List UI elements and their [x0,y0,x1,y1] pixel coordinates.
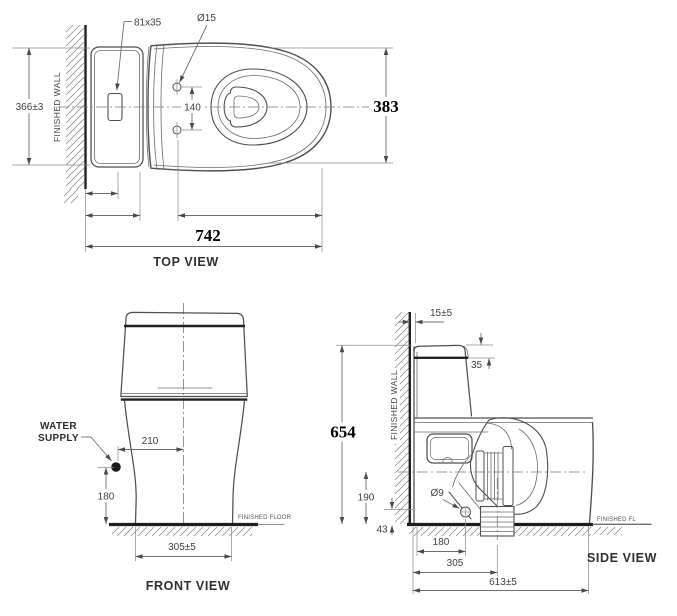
hatch-stroke [519,527,528,536]
hatch-stroke [66,161,84,179]
hatch-stroke [66,84,84,102]
dim-outlet-from-wall: 305 [413,527,497,594]
hatch-stroke [250,534,252,536]
hatch-stroke [395,466,409,480]
hatch-stroke [66,49,84,67]
dim-label-140: 140 [184,103,201,114]
dim-label-305-front: 305±5 [168,542,196,553]
callout-hole-diameter: Ø15 [180,13,217,83]
coupler-flange-right [503,447,513,506]
hatch-stroke [435,527,444,536]
hatch-stroke [66,112,84,130]
hatch-stroke [145,527,154,536]
coupler-flange-left [476,451,484,501]
arrowhead [315,244,322,249]
hatch-stroke [66,70,84,88]
floor-hatch-front [112,527,252,536]
callout-bolt-hole: Ø9 [431,488,460,509]
dim-label-35: 35 [471,360,483,371]
hatch-stroke [66,105,84,123]
hatch-stroke [395,459,409,473]
arrowhead [582,588,589,593]
hatch-stroke [124,527,133,536]
arrowhead [384,48,389,55]
arrowhead [180,75,185,82]
wall-hatch-tail [64,189,78,203]
hatch-stroke [409,527,416,534]
dim-label-d15: Ø15 [197,13,216,24]
hatch-stroke [561,527,570,536]
hatch-stroke [395,494,409,508]
water-supply-point [111,462,121,472]
arrowhead [413,570,420,575]
arrowhead [177,447,184,452]
dim-label-210: 210 [142,436,159,447]
hatch-stroke [582,527,591,536]
hatch-stroke [66,42,84,60]
hatch-stroke [64,189,78,203]
hatch-stroke [554,527,563,536]
hatch-stroke [428,527,437,536]
hatch-stroke [201,527,210,536]
hatch-stroke [395,312,409,326]
hatch-stroke [575,527,584,536]
hatch-stroke [414,527,423,536]
dim-label-180-front: 180 [98,492,115,503]
hatch-stroke [66,154,84,172]
arrowhead [490,570,497,575]
callout-button-size: 81x35 [115,18,161,91]
hatch-stroke [66,91,84,109]
hatch-stroke [568,527,577,536]
hatch-stroke [66,35,84,53]
hatch-stroke [395,340,409,354]
top-view: 366±3 140 81x35 Ø15 383 [11,13,403,269]
body-side-left [125,401,137,524]
arrowhead [416,320,423,325]
hatch-stroke [395,473,409,487]
dim-label-654: 654 [330,423,356,442]
hatch-stroke [138,527,147,536]
hatch-stroke [229,527,238,536]
arrowhead [190,123,195,130]
hatch-stroke [395,487,409,501]
dim-label-81x35: 81x35 [134,18,162,29]
finished-wall-label-side: FINISHED WALL [389,370,399,440]
hatch-stroke [421,527,430,536]
hatch-stroke [621,534,622,535]
arrowhead [390,526,395,533]
dim-label-305-side: 305 [447,558,464,569]
hatch-stroke [66,126,84,144]
hatch-stroke [243,527,252,536]
arrowhead [86,191,93,196]
arrowhead [136,554,143,559]
hatch-stroke [594,527,601,534]
hatch-stroke [449,527,458,536]
hatch-stroke [442,527,451,536]
hatch-stroke [66,28,84,46]
hatch-stroke [400,515,409,524]
dim-trap-height: 190 [354,472,379,524]
side-view: FINISHED WALL [327,308,657,594]
hatch-stroke [66,25,80,39]
front-view: FINISHED FLOOR WATER SUPPLY 210 180 [38,303,292,593]
hatch-stroke [236,527,245,536]
technical-drawing: 366±3 140 81x35 Ø15 383 [0,0,677,616]
hatch-stroke [66,133,84,151]
arrowhead [27,158,32,165]
hatch-stroke [66,56,84,74]
hatch-stroke [112,527,119,534]
floor-hatch-side-right [594,527,622,535]
dim-hole-spacing: 140 [181,87,204,130]
finished-floor-label-side: FINISHED FL [597,517,636,523]
dim-supply-to-center: 210 [118,436,184,461]
arrowhead [315,213,322,218]
dim-tank-lid: 35 [466,333,495,371]
arrowhead [390,502,395,509]
hatch-stroke [600,527,608,535]
hatch-stroke [222,527,231,536]
body-side-right [233,401,245,524]
arrowhead [86,244,93,249]
hatch-stroke [194,527,203,536]
arrowhead [104,468,109,475]
hatch-stroke [614,527,622,535]
hatch-stroke [215,527,224,536]
arrowhead [133,213,140,218]
hatch-stroke [540,527,549,536]
arrowhead [86,213,93,218]
hatch-stroke [526,527,535,536]
dim-label-383: 383 [373,97,399,116]
dim-label-180-side: 180 [433,537,450,548]
bowl-front-profile [590,423,594,524]
hatch-stroke [173,527,182,536]
hatch-stroke [159,527,168,536]
arrowhead [111,191,118,196]
arrowhead [459,549,466,554]
front-view-title: FRONT VIEW [146,579,230,593]
hatch-stroke [395,312,402,319]
water-supply-line2: SUPPLY [38,433,79,444]
arrowhead [178,213,185,218]
dim-label-15: 15±5 [430,308,453,319]
arrowhead [115,83,120,90]
hatch-stroke [395,333,409,347]
hatch-stroke [470,527,479,536]
arrowhead [225,554,232,559]
hatch-stroke [77,182,84,189]
arrowhead [487,359,492,366]
water-supply-callout: WATER SUPPLY [38,421,121,472]
hatch-stroke [66,168,84,186]
tank-side [414,345,472,416]
dim-bowl-width: 383 [268,48,403,163]
hatch-stroke [66,147,84,165]
dim-wall-gap: 15±5 [398,308,453,343]
hatch-stroke [208,527,217,536]
hatch-stroke [66,63,84,81]
arrowhead [190,87,195,94]
hatch-stroke [463,527,472,536]
water-supply-line1: WATER [40,421,77,432]
hatch-stroke [180,527,189,536]
access-panel [427,434,472,463]
hatch-stroke [117,527,126,536]
dim-label-366: 366±3 [16,102,44,113]
dim-label-742: 742 [195,226,221,245]
hatch-stroke [66,119,84,137]
hatch-stroke [589,534,591,536]
hatch-stroke [70,175,84,189]
dim-supply-height: 180 [94,468,118,525]
arrowhead [479,338,484,345]
dim-label-43: 43 [377,525,389,536]
arrowhead [364,472,369,479]
arrowhead [118,447,125,452]
arrowhead [27,48,32,55]
dim-label-d9: Ø9 [431,488,445,499]
hatch-stroke [395,326,409,340]
hatch-stroke [64,189,71,196]
arrowhead [340,345,345,352]
arrowhead [104,517,109,524]
hatch-stroke [71,196,78,203]
hatch-stroke [66,77,84,95]
hatch-stroke [395,501,409,515]
dim-overall-length: 742 [86,226,323,249]
hatch-stroke [607,527,615,535]
side-view-title: SIDE VIEW [587,551,657,565]
dim-wall-to-edge: 366±3 [11,48,90,165]
finished-wall-label-top: FINISHED WALL [52,72,62,142]
arrowhead [340,517,345,524]
arrowhead [417,549,424,554]
arrowhead [384,156,389,163]
hatch-stroke [166,527,175,536]
hatch-stroke [547,527,556,536]
hatch-stroke [395,445,409,459]
top-view-title: TOP VIEW [153,255,218,269]
toilet-installation-drawing: 366±3 140 81x35 Ø15 383 [0,0,677,616]
hatch-stroke [152,527,161,536]
finished-floor-label: FINISHED FLOOR [238,515,292,521]
hatch-stroke [187,527,196,536]
arrowhead [364,517,369,524]
hatch-stroke [456,527,465,536]
hatch-stroke [66,25,73,32]
arrowhead [413,588,420,593]
hatch-stroke [533,527,542,536]
hatch-stroke [66,140,84,158]
hatch-stroke [395,508,409,522]
hatch-stroke [395,480,409,494]
hatch-stroke [395,354,409,368]
dim-label-613: 613±5 [489,577,517,588]
hatch-stroke [395,347,409,361]
dim-label-190: 190 [358,493,375,504]
hatch-stroke [395,452,409,466]
